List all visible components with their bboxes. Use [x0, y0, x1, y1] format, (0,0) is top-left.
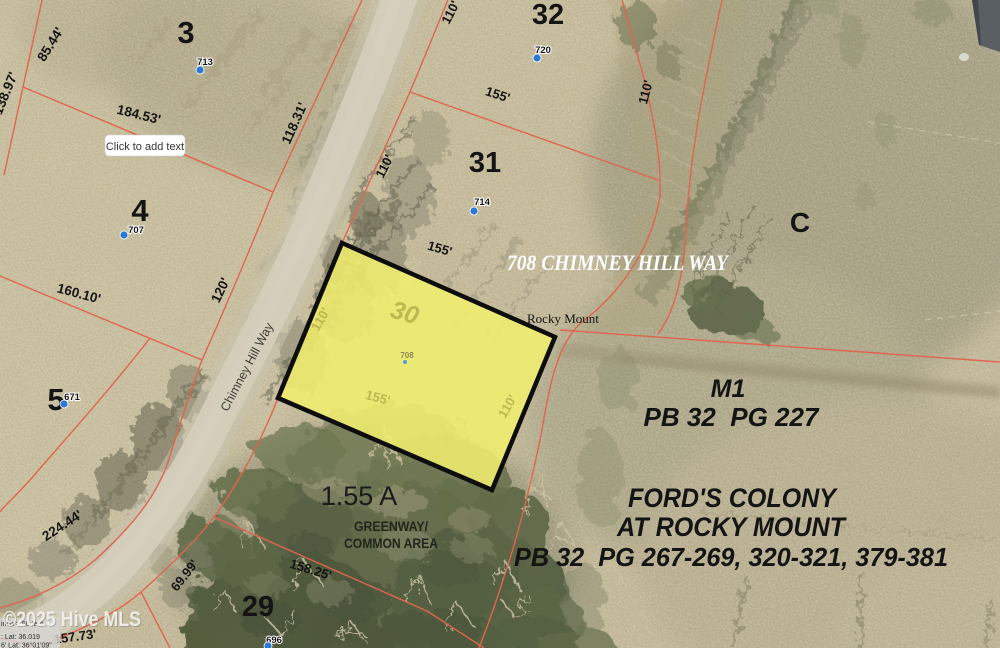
svg-text:6' Lat: 36°01'09": 6' Lat: 36°01'09" [1, 642, 52, 648]
svg-text:1.55 A: 1.55 A [321, 481, 398, 511]
svg-text:M1: M1 [711, 375, 746, 403]
svg-text:708: 708 [400, 351, 414, 360]
svg-text:714: 714 [474, 197, 491, 208]
svg-text:31: 31 [469, 147, 501, 179]
svg-text:3: 3 [177, 15, 194, 50]
svg-text:32: 32 [532, 0, 564, 31]
svg-text:FORD'S COLONY: FORD'S COLONY [628, 483, 839, 513]
svg-text:5: 5 [47, 382, 64, 417]
svg-text:707: 707 [128, 225, 144, 236]
svg-text:©2025 Hive MLS: ©2025 Hive MLS [3, 608, 141, 631]
svg-text:29: 29 [242, 591, 274, 623]
svg-text:COMMON AREA: COMMON AREA [344, 536, 438, 551]
svg-text:C: C [790, 207, 810, 238]
svg-text:PB 32 PG 267-269, 320-321, 37: PB 32 PG 267-269, 320-321, 379-381 [514, 542, 948, 572]
svg-text:AT ROCKY MOUNT: AT ROCKY MOUNT [616, 512, 847, 542]
svg-text:708 CHIMNEY HILL WAY: 708 CHIMNEY HILL WAY [507, 250, 730, 275]
svg-text:Rocky Mount: Rocky Mount [527, 311, 599, 326]
svg-text:PB 32 PG 227: PB 32 PG 227 [644, 402, 820, 432]
svg-text:4: 4 [131, 193, 149, 228]
svg-text:GREENWAY/: GREENWAY/ [354, 519, 428, 534]
svg-text:: Lat: 36.019: : Lat: 36.019 [1, 634, 40, 641]
svg-text:Click to add text: Click to add text [106, 141, 184, 153]
